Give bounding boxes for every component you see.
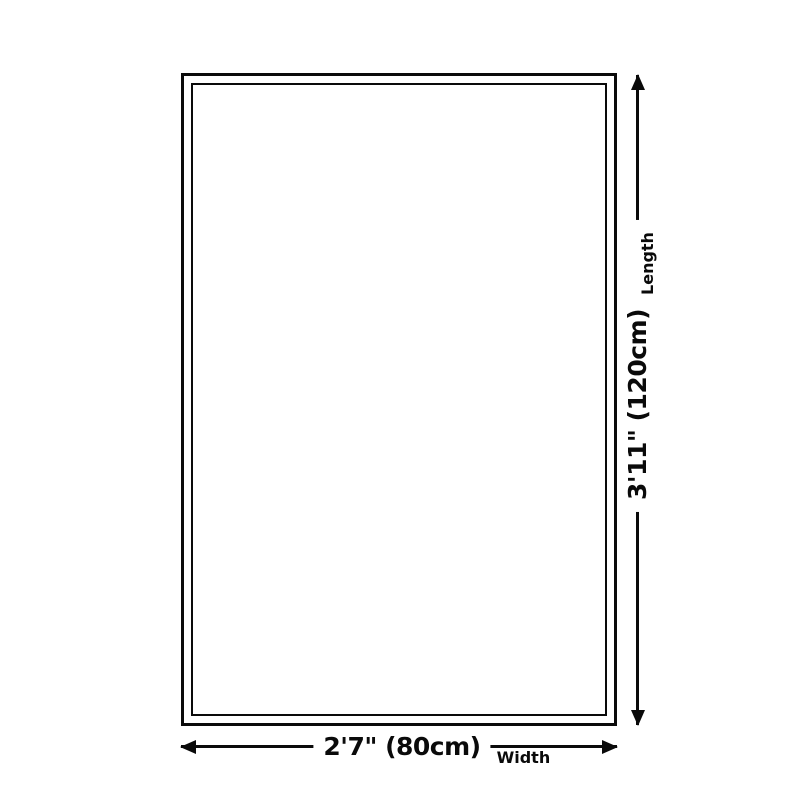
length-dimension-label: 3'11" (120cm) Length — [623, 220, 653, 512]
size-diagram: 3'11" (120cm) Length 2'7" (80cm) Width — [0, 0, 800, 800]
width-dimension-label: 2'7" (80cm) Width — [313, 732, 490, 762]
length-axis-label: Length — [640, 232, 656, 295]
width-axis-label: Width — [497, 750, 551, 766]
product-outline-rectangle — [181, 73, 617, 726]
width-value: 2'7" (80cm) — [323, 732, 480, 762]
product-inner-border — [191, 83, 607, 716]
length-value: 3'11" (120cm) — [623, 309, 653, 500]
